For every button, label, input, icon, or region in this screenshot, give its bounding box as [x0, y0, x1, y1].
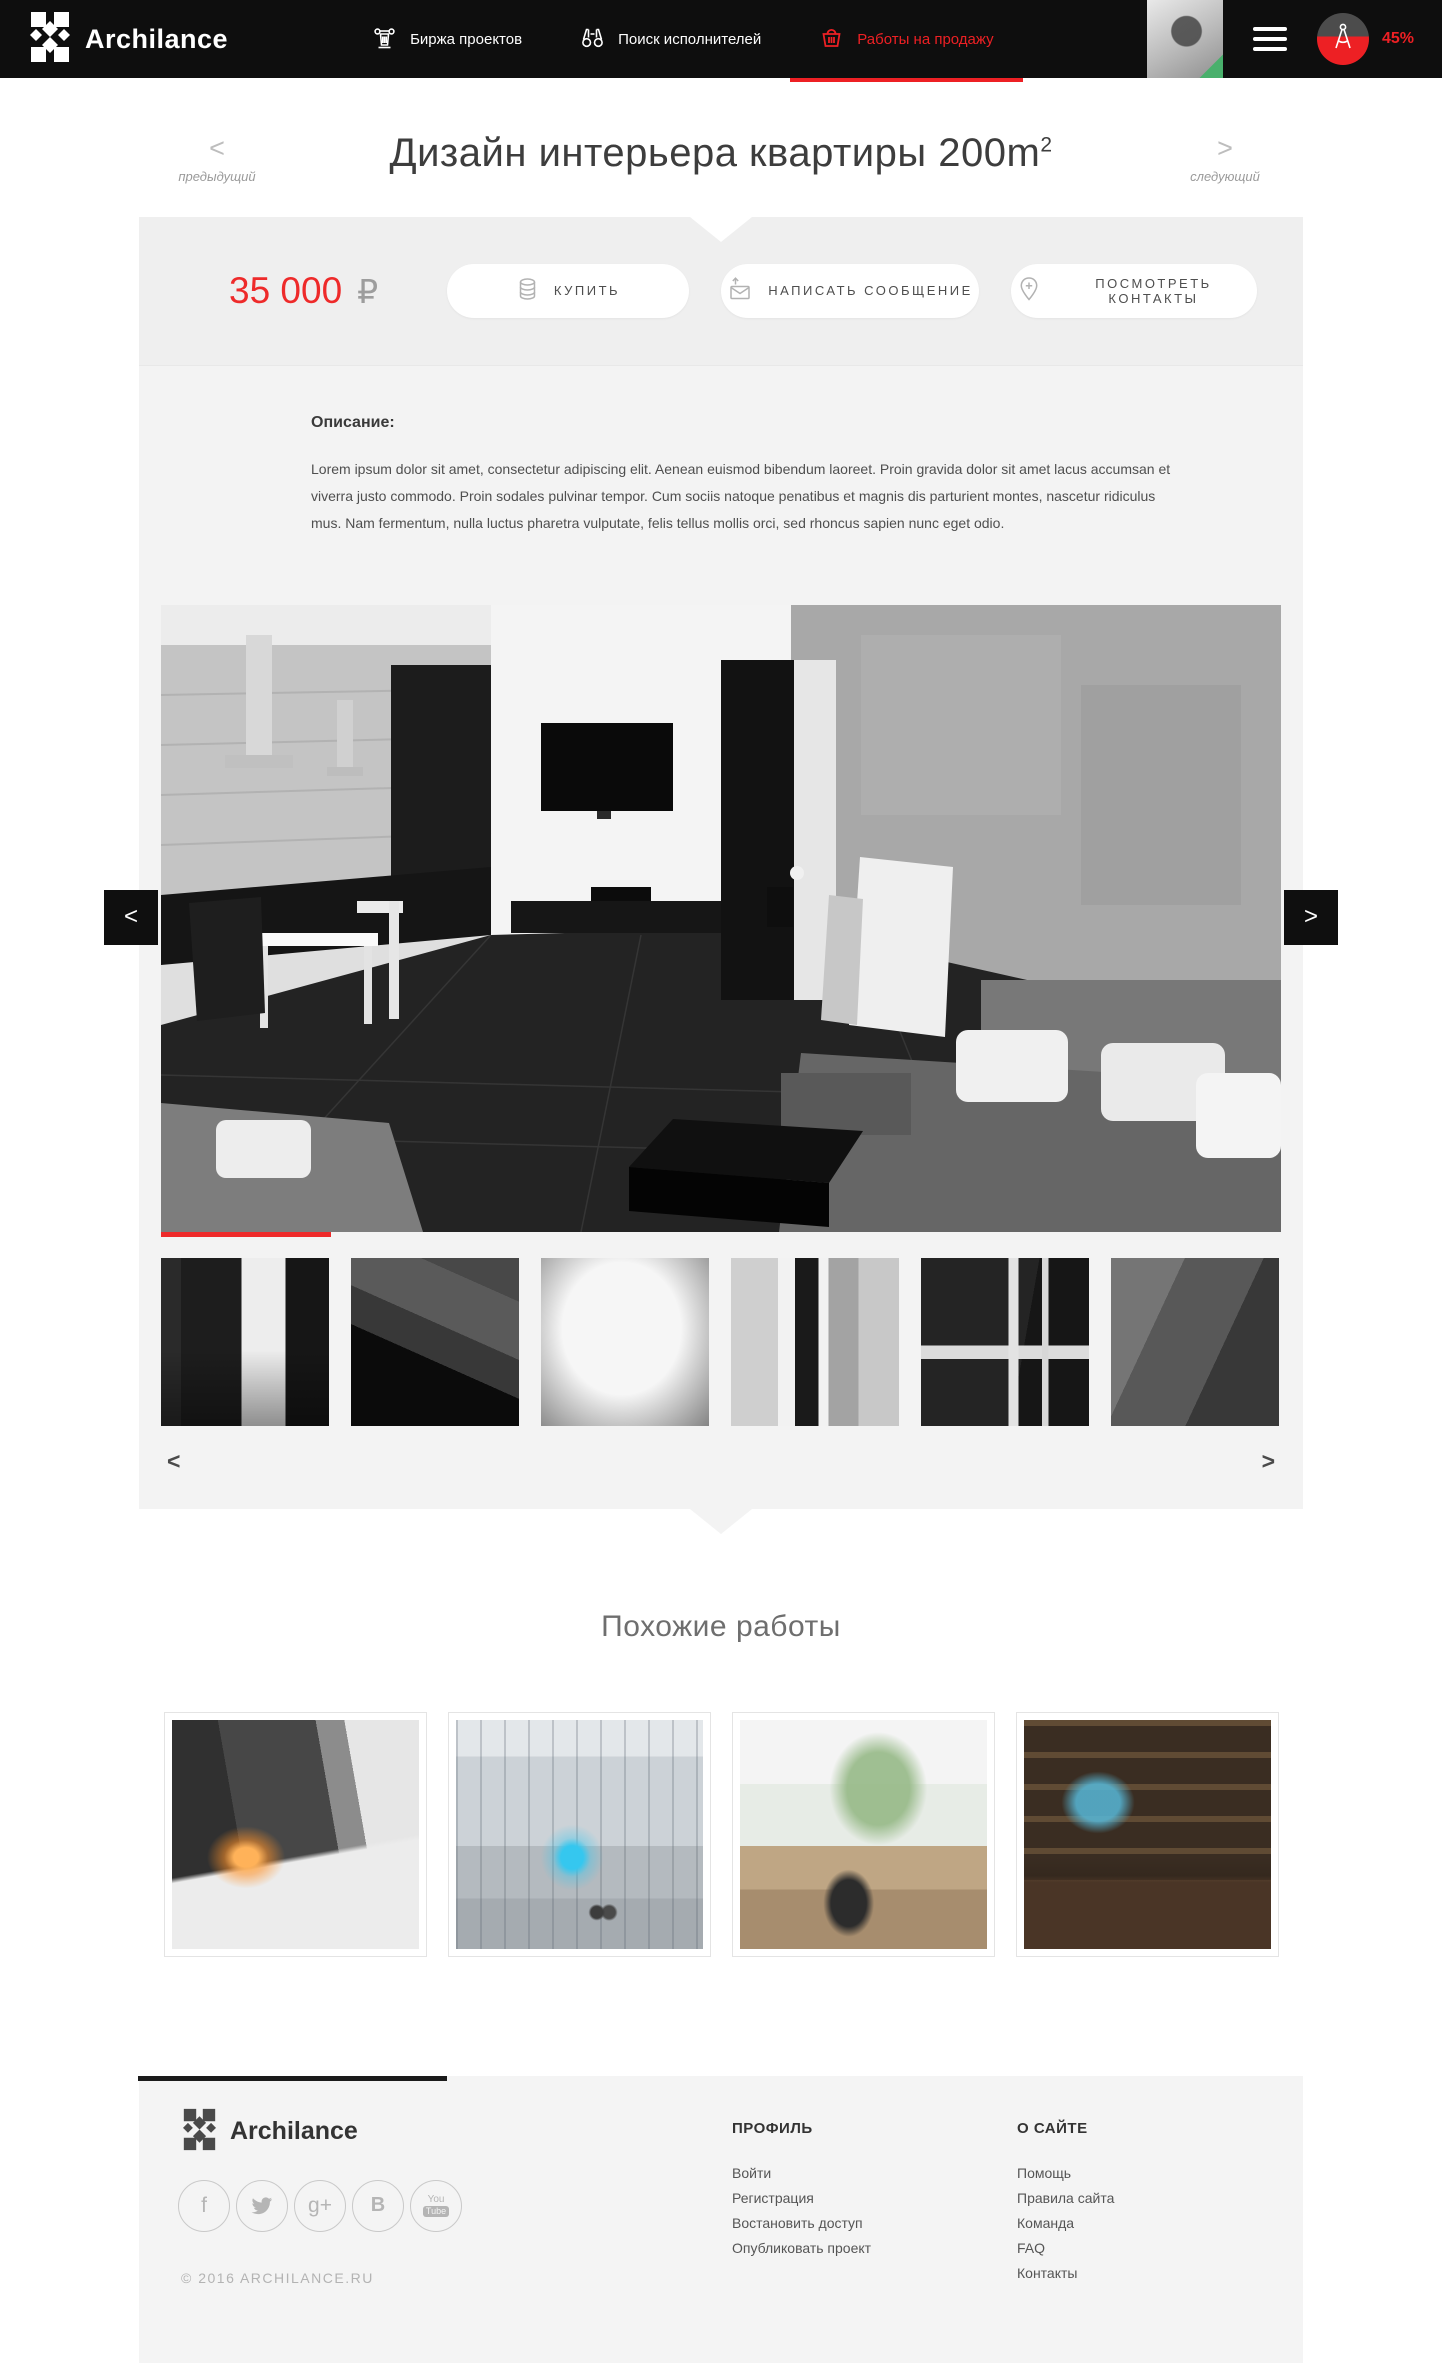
title-bar: < предыдущий Дизайн интерьера квартиры 2… — [139, 105, 1303, 217]
top-navigation-bar: Archilance Биржа проектов — [0, 0, 1442, 78]
title-superscript: 2 — [1040, 133, 1052, 156]
similar-work-card-4[interactable] — [1016, 1712, 1279, 1957]
footer-link-register[interactable]: Регистрация — [732, 2186, 871, 2211]
prev-label: предыдущий — [157, 169, 277, 184]
carousel-progress-indicator — [161, 1232, 331, 1237]
profile-progress-percent: 45% — [1382, 30, 1414, 48]
next-label: следующий — [1165, 169, 1285, 184]
archilance-logo-icon — [30, 11, 70, 68]
prev-arrow-icon[interactable]: < — [157, 135, 277, 162]
archilance-footer-logo-icon — [183, 2108, 216, 2156]
next-arrow-icon[interactable]: > — [1165, 135, 1285, 162]
carousel-prev-button[interactable]: < — [104, 890, 158, 945]
nav-item-projects[interactable]: Биржа проектов — [343, 0, 551, 78]
main-nav: Биржа проектов Поиск исполнителей Рабо — [343, 0, 1023, 78]
carousel-next-button[interactable]: > — [1284, 890, 1338, 945]
footer-brand[interactable]: Archilance — [183, 2108, 358, 2156]
price-bar: 35 000 ₽ КУПИТЬ — [139, 217, 1303, 365]
brand-name: Archilance — [85, 24, 228, 55]
nav-item-label: Поиск исполнителей — [618, 31, 761, 48]
footer-inner: Archilance f g+ B — [139, 2076, 1303, 2363]
action-buttons: КУПИТЬ НАПИСАТЬ СООБЩЕНИЕ — [447, 264, 1257, 318]
brand-logo[interactable]: Archilance — [0, 0, 228, 78]
footer-brand-name: Archilance — [230, 2117, 358, 2146]
profile-progress-gauge[interactable] — [1317, 13, 1369, 65]
buy-button-label: КУПИТЬ — [554, 283, 620, 298]
price: 35 000 ₽ — [229, 270, 378, 312]
view-contacts-label: ПОСМОТРЕТЬ КОНТАКТЫ — [1056, 276, 1251, 306]
thumbnail-strip — [139, 1258, 1303, 1426]
vk-icon[interactable]: B — [352, 2180, 404, 2232]
footer-link-restore-access[interactable]: Востановить доступ — [732, 2211, 871, 2236]
basket-icon — [819, 25, 844, 54]
thumbnail-6[interactable] — [1111, 1258, 1279, 1426]
similar-work-image-3 — [740, 1720, 987, 1949]
thumbnail-2[interactable] — [351, 1258, 519, 1426]
footer-about-heading: О САЙТЕ — [1017, 2120, 1114, 2137]
thumbnail-1[interactable] — [161, 1258, 329, 1426]
next-work-nav[interactable]: > следующий — [1165, 135, 1285, 184]
binoculars-icon — [580, 25, 605, 54]
nav-item-freelancers[interactable]: Поиск исполнителей — [551, 0, 790, 78]
footer-link-rules[interactable]: Правила сайта — [1017, 2186, 1114, 2211]
footer: Archilance f g+ B — [139, 2076, 1303, 2363]
header-right: 45% — [1147, 0, 1442, 78]
thumbnail-3[interactable] — [541, 1258, 709, 1426]
view-contacts-button[interactable]: ПОСМОТРЕТЬ КОНТАКТЫ — [1011, 264, 1257, 318]
footer-profile-heading: ПРОФИЛЬ — [732, 2120, 871, 2137]
nav-item-label: Работы на продажу — [857, 31, 993, 48]
social-links: f g+ B You Tube — [178, 2180, 462, 2232]
similar-works-cards — [139, 1712, 1303, 1957]
copyright-text: © 2016 ARCHILANCE.RU — [181, 2270, 374, 2286]
drafting-compass-icon — [1331, 22, 1355, 57]
similar-work-card-1[interactable] — [164, 1712, 427, 1957]
page-title: Дизайн интерьера квартиры 200m2 — [139, 105, 1303, 176]
ruble-sign: ₽ — [357, 272, 378, 311]
footer-accent-bar — [138, 2076, 447, 2081]
nav-item-works-for-sale[interactable]: Работы на продажу — [790, 0, 1022, 78]
similar-work-card-2[interactable] — [448, 1712, 711, 1957]
footer-link-login[interactable]: Войти — [732, 2161, 871, 2186]
prev-work-nav[interactable]: < предыдущий — [157, 135, 277, 184]
similar-works-title: Похожие работы — [139, 1610, 1303, 1644]
footer-link-faq[interactable]: FAQ — [1017, 2236, 1114, 2261]
footer-link-publish-project[interactable]: Опубликовать проект — [732, 2236, 871, 2261]
thumbnails-next-button[interactable]: > — [1262, 1450, 1275, 1473]
twitter-icon[interactable] — [236, 2180, 288, 2232]
coins-icon — [516, 277, 539, 304]
footer-link-team[interactable]: Команда — [1017, 2211, 1114, 2236]
menu-icon[interactable] — [1253, 21, 1287, 57]
google-plus-icon[interactable]: g+ — [294, 2180, 346, 2232]
contacts-pin-icon — [1017, 276, 1041, 305]
thumbnail-5[interactable] — [921, 1258, 1089, 1426]
message-send-icon — [727, 276, 753, 305]
user-avatar[interactable] — [1147, 0, 1223, 78]
buy-button[interactable]: КУПИТЬ — [447, 264, 689, 318]
thumbnail-strip-nav: < > — [139, 1450, 1303, 1473]
price-value: 35 000 — [229, 270, 342, 312]
bank-icon — [372, 25, 397, 54]
footer-link-contacts[interactable]: Контакты — [1017, 2261, 1114, 2286]
similar-works-section: Похожие работы — [139, 1509, 1303, 2076]
description-heading: Описание: — [311, 414, 1173, 432]
send-message-label: НАПИСАТЬ СООБЩЕНИЕ — [768, 283, 973, 298]
description-text: Lorem ipsum dolor sit amet, consectetur … — [311, 456, 1173, 538]
similar-work-card-3[interactable] — [732, 1712, 995, 1957]
description-section: Описание: Lorem ipsum dolor sit amet, co… — [139, 365, 1303, 605]
main-photo-interior — [161, 605, 1281, 1232]
nav-item-label: Биржа проектов — [410, 31, 522, 48]
thumbnail-4[interactable] — [731, 1258, 899, 1426]
footer-about-column: О САЙТЕ Помощь Правила сайта Команда FAQ… — [1017, 2120, 1114, 2286]
youtube-icon[interactable]: You Tube — [410, 2180, 462, 2232]
similar-work-image-1 — [172, 1720, 419, 1949]
footer-link-help[interactable]: Помощь — [1017, 2161, 1114, 2186]
footer-profile-column: ПРОФИЛЬ Войти Регистрация Востановить до… — [732, 2120, 871, 2261]
thumbnails-prev-button[interactable]: < — [167, 1450, 180, 1473]
send-message-button[interactable]: НАПИСАТЬ СООБЩЕНИЕ — [721, 264, 979, 318]
similar-work-image-4 — [1024, 1720, 1271, 1949]
facebook-icon[interactable]: f — [178, 2180, 230, 2232]
similar-work-image-2 — [456, 1720, 703, 1949]
gallery-carousel: < > — [139, 605, 1303, 1509]
